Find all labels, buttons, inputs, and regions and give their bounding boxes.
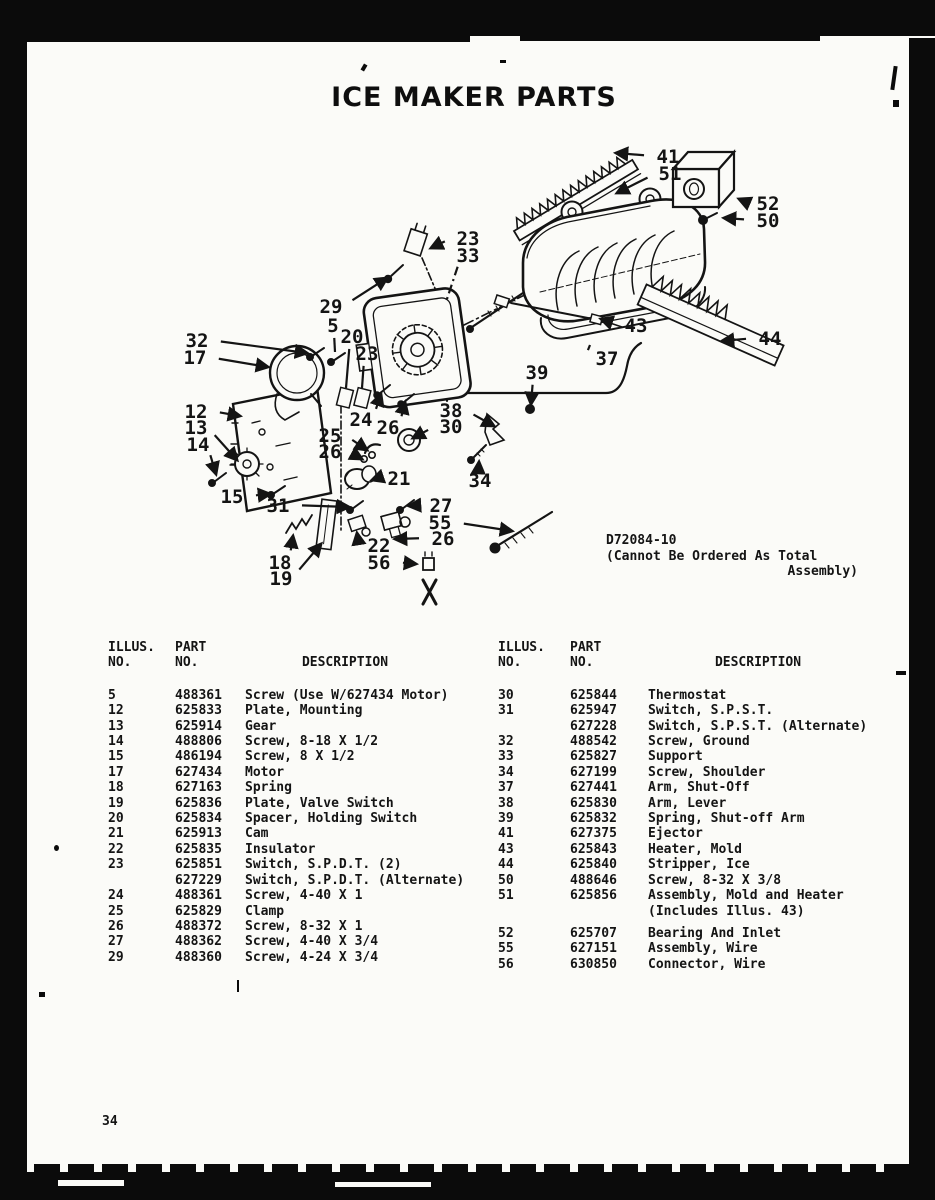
callout-leader-56 xyxy=(403,563,416,564)
cell-illus-no: 51 xyxy=(498,888,570,903)
header-illus: ILLUS. xyxy=(498,640,570,655)
cell-illus-no: 30 xyxy=(498,688,570,703)
cell-illus-no: 12 xyxy=(108,703,175,718)
callout-leader-55 xyxy=(464,524,512,531)
header-part: PART xyxy=(175,640,245,655)
parts-row: 52625707Bearing And Inlet xyxy=(498,926,868,941)
callout-leader-21 xyxy=(372,479,375,480)
cell-description: Spring xyxy=(245,780,292,795)
callout-leader-25 xyxy=(352,440,367,450)
header-part-no: NO. xyxy=(175,655,245,670)
parts-row: 21625913Cam xyxy=(108,826,464,841)
ice-maker-exploded-diagram: 4151525023332953217202343374439121314383… xyxy=(0,0,935,1200)
callout-label-56: 56 xyxy=(368,552,391,574)
parts-row: 56630850Connector, Wire xyxy=(498,957,868,972)
callout-label-17: 17 xyxy=(184,347,207,369)
callout-label-26: 26 xyxy=(377,417,400,439)
parts-table-right: ILLUS.PART NO.NO.DESCRIPTION 30625844The… xyxy=(498,640,868,972)
scanned-manual-page: ICE MAKER PARTS xyxy=(0,0,935,1200)
callout-leader-31 xyxy=(302,505,349,507)
cell-description: Plate, Valve Switch xyxy=(245,796,394,811)
cell-part-no: 625856 xyxy=(570,888,648,903)
cell-illus-no xyxy=(108,873,175,888)
cell-part-no: 625947 xyxy=(570,703,648,718)
cell-part-no: 625830 xyxy=(570,796,648,811)
cell-description: Screw, 8-32 X 3/8 xyxy=(648,873,781,888)
callout-label-19: 19 xyxy=(270,568,293,590)
cell-illus-no: 33 xyxy=(498,749,570,764)
cell-illus-no: 32 xyxy=(498,734,570,749)
cell-description: Plate, Mounting xyxy=(245,703,362,718)
cell-part-no: 625914 xyxy=(175,719,245,734)
cell-illus-no xyxy=(498,904,570,919)
cell-part-no: 627228 xyxy=(570,719,648,734)
cell-description: Screw, 8-32 X 1 xyxy=(245,919,362,934)
cell-illus-no: 56 xyxy=(498,957,570,972)
cell-description: Heater, Mold xyxy=(648,842,742,857)
parts-table-right-body: 30625844Thermostat31625947Switch, S.P.S.… xyxy=(498,688,868,972)
parts-row: 55627151Assembly, Wire xyxy=(498,941,868,956)
parts-row: 38625830Arm, Lever xyxy=(498,796,868,811)
cell-part-no xyxy=(570,919,648,926)
cell-description: Bearing And Inlet xyxy=(648,926,781,941)
parts-row: 627228Switch, S.P.S.T. (Alternate) xyxy=(498,719,868,734)
parts-row: 30625844Thermostat xyxy=(498,688,868,703)
cell-description: Screw, 8 X 1/2 xyxy=(245,749,355,764)
cell-illus-no: 26 xyxy=(108,919,175,934)
cell-part-no: 627441 xyxy=(570,780,648,795)
cell-description: Switch, S.P.D.T. (Alternate) xyxy=(245,873,464,888)
cell-illus-no: 52 xyxy=(498,926,570,941)
callout-leader-26 xyxy=(353,454,362,459)
parts-row: 20625834Spacer, Holding Switch xyxy=(108,811,464,826)
cell-illus-no: 15 xyxy=(108,749,175,764)
parts-row: 43625843Heater, Mold xyxy=(498,842,868,857)
parts-row: 14488806Screw, 8-18 X 1/2 xyxy=(108,734,464,749)
table-header-row: NO.NO.DESCRIPTION xyxy=(108,655,464,670)
callout-leader-23 xyxy=(431,241,445,248)
cell-description: Motor xyxy=(245,765,284,780)
cell-description: Screw, 8-18 X 1/2 xyxy=(245,734,378,749)
cell-part-no: 625840 xyxy=(570,857,648,872)
cell-part-no: 627375 xyxy=(570,826,648,841)
callout-leader-50 xyxy=(724,218,744,219)
cell-illus-no: 14 xyxy=(108,734,175,749)
callout-label-14: 14 xyxy=(187,434,210,456)
callout-leader-18 xyxy=(291,536,293,550)
callout-label-26: 26 xyxy=(432,528,455,550)
parts-row: 50488646Screw, 8-32 X 3/8 xyxy=(498,873,868,888)
cell-part-no: 625913 xyxy=(175,826,245,841)
cell-illus-no: 39 xyxy=(498,811,570,826)
cell-part-no: 625827 xyxy=(570,749,648,764)
parts-row: 33625827Support xyxy=(498,749,868,764)
callout-label-26: 26 xyxy=(319,441,342,463)
cell-description xyxy=(648,919,656,926)
page-number: 34 xyxy=(102,1114,118,1129)
cell-part-no: 488542 xyxy=(570,734,648,749)
callout-label-24: 24 xyxy=(350,409,373,431)
cell-part-no: 488646 xyxy=(570,873,648,888)
cell-part-no: 625829 xyxy=(175,904,245,919)
parts-row: 627229Switch, S.P.D.T. (Alternate) xyxy=(108,873,464,888)
cell-part-no: 488361 xyxy=(175,888,245,903)
cell-description: Arm, Lever xyxy=(648,796,726,811)
cell-part-no: 627151 xyxy=(570,941,648,956)
cell-part-no: 625843 xyxy=(570,842,648,857)
cell-description: Clamp xyxy=(245,904,284,919)
cell-illus-no: 25 xyxy=(108,904,175,919)
diagram-id: D72084-10 xyxy=(606,533,858,549)
parts-row: 12625833Plate, Mounting xyxy=(108,703,464,718)
callout-label-50: 50 xyxy=(757,210,780,232)
cell-illus-no xyxy=(498,719,570,734)
callout-label-51: 51 xyxy=(659,163,682,185)
cell-illus-no: 19 xyxy=(108,796,175,811)
cell-illus-no: 13 xyxy=(108,719,175,734)
cell-description: Assembly, Wire xyxy=(648,941,758,956)
cell-description: Stripper, Ice xyxy=(648,857,750,872)
parts-row: 18627163Spring xyxy=(108,780,464,795)
cell-illus-no: 5 xyxy=(108,688,175,703)
header-illus: ILLUS. xyxy=(108,640,175,655)
cell-description: Screw (Use W/627434 Motor) xyxy=(245,688,449,703)
parts-row: 5488361Screw (Use W/627434 Motor) xyxy=(108,688,464,703)
header-illus-no: NO. xyxy=(498,655,570,670)
cell-illus-no: 43 xyxy=(498,842,570,857)
cell-description: Switch, S.P.S.T. xyxy=(648,703,773,718)
parts-row: 13625914Gear xyxy=(108,719,464,734)
cell-description: Switch, S.P.S.T. (Alternate) xyxy=(648,719,867,734)
parts-row: 34627199Screw, Shoulder xyxy=(498,765,868,780)
cell-description: Spring, Shut-off Arm xyxy=(648,811,805,826)
callout-leader-52 xyxy=(739,199,744,201)
cell-description: Ejector xyxy=(648,826,703,841)
callout-label-33: 33 xyxy=(457,245,480,267)
parts-row: 25625829Clamp xyxy=(108,904,464,919)
callout-leader-22 xyxy=(357,533,358,539)
cell-part-no: 625833 xyxy=(175,703,245,718)
parts-row: 22625835Insulator xyxy=(108,842,464,857)
parts-row: 15486194Screw, 8 X 1/2 xyxy=(108,749,464,764)
cell-description: Screw, 4-40 X 3/4 xyxy=(245,934,378,949)
callout-label-30: 30 xyxy=(440,416,463,438)
cell-illus-no: 41 xyxy=(498,826,570,841)
diagram-note-line: (Cannot Be Ordered As Total xyxy=(606,549,858,565)
parts-row: 37627441Arm, Shut-Off xyxy=(498,780,868,795)
cell-description: Insulator xyxy=(245,842,315,857)
callout-leader-17 xyxy=(219,359,268,367)
cell-part-no xyxy=(570,904,648,919)
header-part-no: NO. xyxy=(570,655,648,670)
parts-row xyxy=(498,919,868,926)
cell-description: Gear xyxy=(245,719,276,734)
cell-part-no: 625844 xyxy=(570,688,648,703)
cell-illus-no: 44 xyxy=(498,857,570,872)
cell-description: Screw, 4-24 X 3/4 xyxy=(245,950,378,965)
cell-illus-no: 38 xyxy=(498,796,570,811)
cell-illus-no: 31 xyxy=(498,703,570,718)
cell-illus-no: 21 xyxy=(108,826,175,841)
parts-row: 41627375Ejector xyxy=(498,826,868,841)
cell-illus-no: 22 xyxy=(108,842,175,857)
parts-row: (Includes Illus. 43) xyxy=(498,904,868,919)
cell-part-no: 625707 xyxy=(570,926,648,941)
parts-row: 29488360Screw, 4-24 X 3/4 xyxy=(108,950,464,965)
cell-illus-no: 37 xyxy=(498,780,570,795)
parts-row: 19625836Plate, Valve Switch xyxy=(108,796,464,811)
callout-leader-5 xyxy=(334,338,335,352)
table-header-row: ILLUS.PART xyxy=(498,640,868,655)
cell-description: Thermostat xyxy=(648,688,726,703)
part-bearing-inlet-52 xyxy=(673,152,734,207)
diagram-note: D72084-10 (Cannot Be Ordered As Total As… xyxy=(606,533,858,580)
cell-part-no: 625832 xyxy=(570,811,648,826)
cell-description: Switch, S.P.D.T. (2) xyxy=(245,857,402,872)
cell-description: Screw, Shoulder xyxy=(648,765,765,780)
cell-part-no: 486194 xyxy=(175,749,245,764)
parts-table-left: ILLUS.PART NO.NO.DESCRIPTION 5488361Scre… xyxy=(108,640,464,965)
cell-description: Connector, Wire xyxy=(648,957,765,972)
parts-row: 26488372Screw, 8-32 X 1 xyxy=(108,919,464,934)
cell-part-no: 630850 xyxy=(570,957,648,972)
callout-label-37: 37 xyxy=(596,348,619,370)
cell-description: Cam xyxy=(245,826,268,841)
parts-row: 31625947Switch, S.P.S.T. xyxy=(498,703,868,718)
cell-illus-no: 55 xyxy=(498,941,570,956)
cell-illus-no: 27 xyxy=(108,934,175,949)
cell-illus-no: 17 xyxy=(108,765,175,780)
cell-part-no: 625851 xyxy=(175,857,245,872)
callout-leader-37 xyxy=(588,345,590,350)
cell-part-no: 627163 xyxy=(175,780,245,795)
parts-row: 39625832Spring, Shut-off Arm xyxy=(498,811,868,826)
cell-description: Screw, Ground xyxy=(648,734,750,749)
cell-illus-no: 23 xyxy=(108,857,175,872)
cell-illus-no: 24 xyxy=(108,888,175,903)
cell-part-no: 625836 xyxy=(175,796,245,811)
cell-description: Support xyxy=(648,749,703,764)
cell-part-no: 488362 xyxy=(175,934,245,949)
callout-leader-13 xyxy=(215,435,237,460)
callout-label-31: 31 xyxy=(267,495,290,517)
cell-part-no: 627434 xyxy=(175,765,245,780)
cell-description: Assembly, Mold and Heater xyxy=(648,888,844,903)
cell-illus-no: 29 xyxy=(108,950,175,965)
cell-part-no: 488806 xyxy=(175,734,245,749)
cell-illus-no: 50 xyxy=(498,873,570,888)
cell-part-no: 488360 xyxy=(175,950,245,965)
parts-table-left-body: 5488361Screw (Use W/627434 Motor)1262583… xyxy=(108,688,464,965)
parts-row: 44625840Stripper, Ice xyxy=(498,857,868,872)
callout-leader-14 xyxy=(210,455,216,474)
cell-description: (Includes Illus. 43) xyxy=(648,904,805,919)
cell-description: Screw, 4-40 X 1 xyxy=(245,888,362,903)
cell-part-no: 488361 xyxy=(175,688,245,703)
callout-label-5: 5 xyxy=(327,315,338,337)
parts-row: 27488362Screw, 4-40 X 3/4 xyxy=(108,934,464,949)
part-screw-50 xyxy=(699,213,717,224)
table-header-row: ILLUS.PART xyxy=(108,640,464,655)
callout-label-15: 15 xyxy=(221,486,244,508)
header-description: DESCRIPTION xyxy=(648,655,868,670)
callout-label-21: 21 xyxy=(388,468,411,490)
callout-leader-20 xyxy=(346,349,349,388)
callout-leader-19 xyxy=(299,544,321,570)
callout-label-44: 44 xyxy=(759,328,782,350)
cell-illus-no xyxy=(498,919,570,926)
parts-row: 32488542Screw, Ground xyxy=(498,734,868,749)
parts-row: 17627434Motor xyxy=(108,765,464,780)
header-part: PART xyxy=(570,640,648,655)
callout-label-43: 43 xyxy=(625,315,648,337)
callout-label-34: 34 xyxy=(469,470,492,492)
cell-description: Spacer, Holding Switch xyxy=(245,811,417,826)
callout-label-23: 23 xyxy=(356,343,379,365)
parts-row: 51625856Assembly, Mold and Heater xyxy=(498,888,868,903)
part-mounting-plate-12 xyxy=(230,387,331,511)
cell-description: Arm, Shut-Off xyxy=(648,780,750,795)
cell-part-no: 625835 xyxy=(175,842,245,857)
header-illus-no: NO. xyxy=(108,655,175,670)
parts-row: 23625851Switch, S.P.D.T. (2) xyxy=(108,857,464,872)
diagram-note-line: Assembly) xyxy=(606,564,858,580)
cell-illus-no: 20 xyxy=(108,811,175,826)
cell-illus-no: 18 xyxy=(108,780,175,795)
cell-part-no: 625834 xyxy=(175,811,245,826)
callout-leader-41 xyxy=(616,153,644,155)
cell-part-no: 627229 xyxy=(175,873,245,888)
callout-leader-26 xyxy=(395,538,419,539)
cell-part-no: 488372 xyxy=(175,919,245,934)
header-description: DESCRIPTION xyxy=(245,655,445,670)
cell-illus-no: 34 xyxy=(498,765,570,780)
callout-leader-27 xyxy=(409,505,417,506)
table-header-row: NO.NO.DESCRIPTION xyxy=(498,655,868,670)
cell-part-no: 627199 xyxy=(570,765,648,780)
callout-label-39: 39 xyxy=(526,362,549,384)
parts-row: 24488361Screw, 4-40 X 1 xyxy=(108,888,464,903)
